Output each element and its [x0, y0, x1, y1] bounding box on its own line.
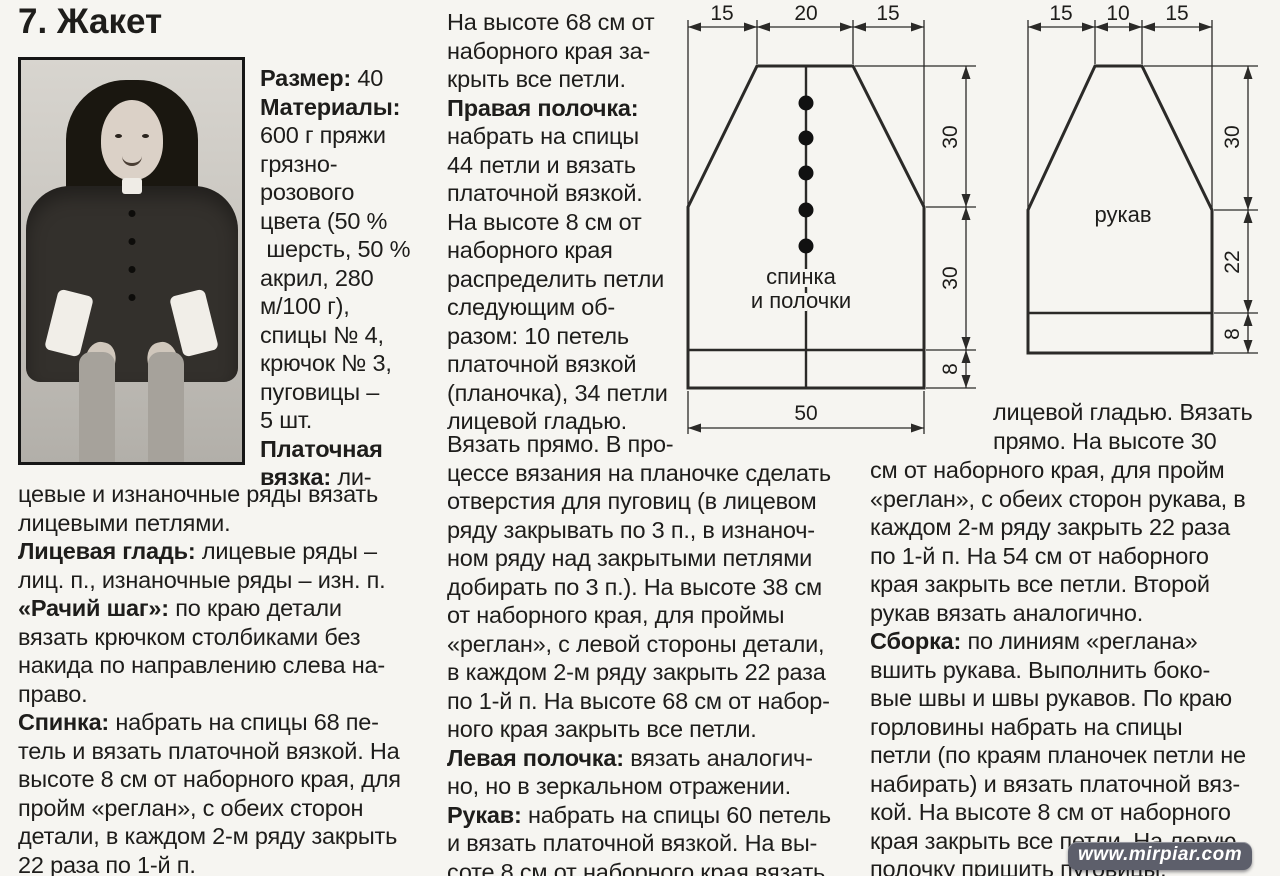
paragraph-text: см от наборного края, для пройм «реглан»…: [870, 457, 1246, 626]
dim-label: 30: [939, 125, 962, 148]
middle-column-bottom: Вязать прямо. В про- цессе вязания на пл…: [447, 430, 877, 876]
paragraph: Правая полочка: набрать на спицы 44 петл…: [447, 94, 707, 436]
paragraph-text: цевые и изнаночные ряды вязать лицевыми …: [18, 481, 378, 536]
paragraph: На высоте 68 см от наборного края за- кр…: [447, 8, 707, 94]
paragraph: «Рачий шаг»: по краю детали вязать крючк…: [18, 594, 458, 708]
paragraph-text: по линиям «реглана» вшить рукава. Выполн…: [870, 628, 1246, 876]
paragraph: лицевой гладью. Вязать прямо. На высоте …: [993, 398, 1273, 455]
paragraph-text: 40: [351, 65, 383, 91]
button-dots: [799, 96, 814, 254]
dim-label: 22: [1221, 250, 1244, 273]
back-piece-diagram: 15 20 15 30 30 8 50 спинка и полочки: [688, 2, 976, 434]
paragraph-text: набрать на спицы 44 петли и вязать плато…: [447, 123, 668, 434]
paragraph-label: «Рачий шаг»:: [18, 595, 169, 621]
paragraph-label: Спинка:: [18, 709, 109, 735]
piece-label: и полочки: [751, 288, 851, 313]
paragraph: см от наборного края, для пройм «реглан»…: [870, 456, 1274, 627]
paragraph-label: Лицевая гладь:: [18, 538, 196, 564]
dim-label: 15: [1049, 2, 1072, 25]
knitting-schematics: 15 20 15 30 30 8 50 спинка и полочки: [660, 0, 1280, 445]
paragraph-text: На высоте 68 см от наборного края за- кр…: [447, 9, 654, 92]
paragraph: Сборка: по линиям «реглана» вшить рукава…: [870, 627, 1274, 876]
dim-label: 10: [1106, 2, 1129, 25]
paragraph-label: Правая полочка:: [447, 95, 638, 121]
sleeve-outline: [1028, 66, 1212, 353]
paragraph-text: 600 г пряжи грязно- розового цвета (50 %…: [260, 122, 410, 433]
paragraph-label: Материалы:: [260, 94, 400, 120]
dim-label: 20: [794, 2, 817, 25]
right-column-bottom: см от наборного края, для пройм «реглан»…: [870, 456, 1274, 876]
dimension-arrows: [688, 23, 971, 433]
paragraph-text: лицевой гладью. Вязать прямо. На высоте …: [993, 399, 1253, 454]
jacket-button: [128, 210, 135, 217]
piece-label: спинка: [766, 264, 836, 289]
page-title: 7. Жакет: [18, 2, 162, 42]
back-piece-outline: [688, 66, 924, 388]
middle-column-top: На высоте 68 см от наборного края за- кр…: [447, 8, 707, 436]
collar-shape: [122, 178, 142, 194]
dim-label: 15: [1165, 2, 1188, 25]
dim-label: 15: [876, 2, 899, 25]
jacket-button: [128, 238, 135, 245]
dim-label: 8: [939, 363, 962, 375]
jacket-button: [128, 294, 135, 301]
paragraph-label: Размер:: [260, 65, 351, 91]
paragraph-label: Левая полочка:: [447, 745, 624, 771]
magazine-page: 7. Жакет Размер: 40 Материалы: 600 г пря…: [0, 0, 1280, 876]
paragraph: цевые и изнаночные ряды вязать лицевыми …: [18, 480, 458, 537]
paragraph: Лицевая гладь: лицевые ряды – лиц. п., и…: [18, 537, 458, 594]
paragraph: Спинка: набрать на спицы 68 пе- тель и в…: [18, 708, 458, 876]
paragraph: Размер: 40: [260, 64, 450, 93]
eye-shape: [115, 134, 122, 138]
paragraph: Материалы: 600 г пряжи грязно- розового …: [260, 93, 450, 435]
piece-label: рукав: [1094, 202, 1151, 227]
eye-shape: [142, 134, 149, 138]
jacket-button: [128, 266, 135, 273]
materials-column: Размер: 40 Материалы: 600 г пряжи грязно…: [260, 64, 450, 492]
right-column-top: лицевой гладью. Вязать прямо. На высоте …: [993, 398, 1273, 455]
dim-label: 30: [939, 266, 962, 289]
paragraph-text: Вязать прямо. В про- цессе вязания на пл…: [447, 431, 831, 742]
paragraph: Левая полочка: вязать аналогич- но, но в…: [447, 744, 877, 801]
paragraph-label: Рукав:: [447, 802, 522, 828]
paragraph: Рукав: набрать на спицы 60 петель и вяза…: [447, 801, 877, 876]
dim-label: 8: [1221, 328, 1244, 340]
smile-shape: [122, 154, 142, 166]
dim-label: 30: [1221, 125, 1244, 148]
face-shape: [101, 100, 163, 180]
dim-label: 15: [710, 2, 733, 25]
sleeve-diagram: 15 10 15 30 22 8 рукав: [1028, 2, 1258, 353]
model-photo: [18, 57, 245, 465]
leg-shape: [148, 352, 184, 462]
leg-shape: [79, 352, 115, 462]
left-column: цевые и изнаночные ряды вязать лицевыми …: [18, 480, 458, 876]
paragraph-label: Сборка:: [870, 628, 961, 654]
dimension-arrows: [1028, 23, 1253, 354]
paragraph: Вязать прямо. В про- цессе вязания на пл…: [447, 430, 877, 744]
dim-label: 50: [794, 402, 817, 425]
watermark: www.mirpiar.com: [1068, 842, 1252, 870]
